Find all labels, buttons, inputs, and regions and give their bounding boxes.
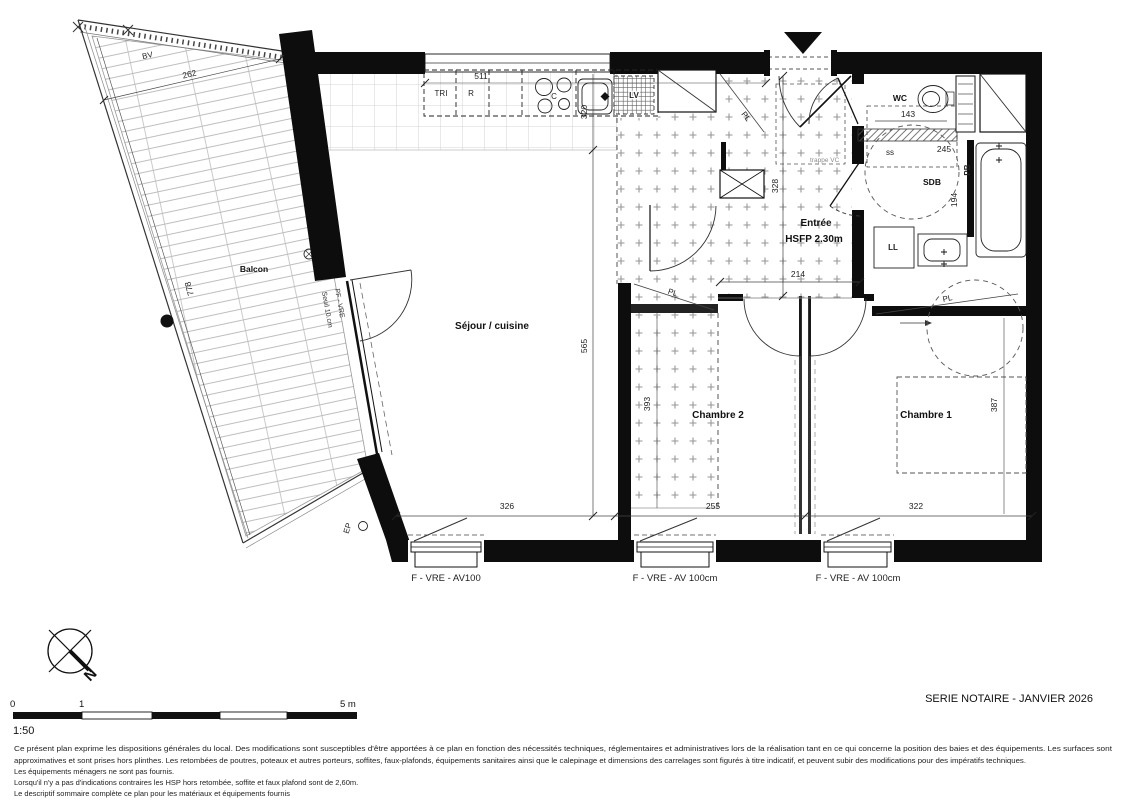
legal-notes: Ce présent plan exprime les dispositions… <box>14 744 1113 798</box>
downpipe-symbol <box>359 522 368 531</box>
room-label-wc: WC <box>893 93 907 103</box>
room-label-chambre2: Chambre 2 <box>692 410 744 421</box>
label-towel: ss <box>886 148 894 157</box>
series-title: SERIE NOTAIRE - JANVIER 2026 <box>925 693 1093 705</box>
room-label-entree: Entrée <box>800 218 832 229</box>
wall-wc-west-1 <box>852 74 864 84</box>
dim-387: 387 <box>989 398 999 412</box>
dim-565: 565 <box>579 339 589 353</box>
kitchen-tiles <box>316 66 617 150</box>
window-1 <box>408 518 484 567</box>
label-trappe: trappe VC <box>810 157 840 164</box>
duct-x-box <box>720 170 764 198</box>
chambre1-bed <box>897 377 1026 473</box>
scale-tick-1: 1 <box>79 699 84 710</box>
sdb-beam-hatch <box>858 129 957 141</box>
kitchen-shaft <box>658 70 716 112</box>
wall-hall <box>631 304 718 313</box>
window-label-1: F - VRE - AV100 <box>411 573 481 584</box>
wall-right <box>1026 52 1042 562</box>
wall-vestibule-left <box>718 294 743 301</box>
railing-corner-x <box>73 22 83 32</box>
north-compass-icon: N <box>48 629 100 685</box>
wall-top-right <box>833 52 1042 74</box>
wall-wc-west-3 <box>852 210 864 298</box>
chambre2-door-arc <box>744 299 800 356</box>
dim-322: 322 <box>909 501 923 511</box>
balcony-post <box>161 315 174 328</box>
dim-143: 143 <box>901 109 915 119</box>
window-2 <box>634 518 716 567</box>
scale-tick-0: 0 <box>10 699 15 710</box>
label-dishwasher: LV <box>629 91 639 100</box>
dim-255: 255 <box>706 501 720 511</box>
floor-plan-svg: Séjour / cuisine Balcon Chambre 2 Chambr… <box>0 0 1126 800</box>
dim-393: 393 <box>642 397 652 411</box>
wall-vestibule-right <box>864 294 874 301</box>
label-hob: C <box>551 92 557 101</box>
entrance-arrow-icon <box>784 32 822 54</box>
floor-textures <box>92 36 852 536</box>
sdb-basin <box>918 234 967 267</box>
label-fridge: R <box>468 89 474 98</box>
room-label-sdb: SDB <box>923 177 941 187</box>
label-bath-pb: PB <box>963 164 972 175</box>
partition-chambres <box>795 296 815 534</box>
scale-bar: 0 1 5 m 1:50 <box>10 699 357 737</box>
dim-245: 245 <box>937 144 951 154</box>
balcony-door-arc <box>360 270 412 341</box>
floor-plan-page: Séjour / cuisine Balcon Chambre 2 Chambr… <box>0 0 1126 800</box>
window-label-3: F - VRE - AV 100cm <box>816 573 901 584</box>
note-line-4: Lorsqu'il n'y a pas d'indications contra… <box>14 778 358 787</box>
wall-bottom-left-angled <box>357 453 414 562</box>
label-tri: TRI <box>435 89 448 98</box>
scale-tick-5m: 5 m <box>340 699 356 710</box>
chambre1-door-arc <box>810 299 866 356</box>
corner-shaft <box>980 74 1026 132</box>
dim-511: 511 <box>474 71 488 81</box>
dim-320: 320 <box>579 105 589 119</box>
note-line-2: approximatives et sont prises hors plint… <box>14 756 1026 765</box>
label-downpipe: EP <box>342 522 354 535</box>
dim-328: 328 <box>770 179 780 193</box>
dim-326: 326 <box>500 501 514 511</box>
balcony-door-leaf <box>350 270 411 280</box>
window-label-2: F - VRE - AV 100cm <box>633 573 718 584</box>
wall-top-left <box>310 52 425 74</box>
bathtub <box>976 143 1026 257</box>
label-closet-chambre1: PL <box>942 293 954 304</box>
room-label-balcon: Balcon <box>240 264 268 274</box>
wall-sejour-corridor <box>618 283 631 545</box>
toilet <box>918 86 954 113</box>
note-line-5: Le descriptif sommaire complète ce plan … <box>14 789 290 798</box>
scale-ratio: 1:50 <box>13 725 34 737</box>
room-label-hsfp: HSFP 2.30m <box>785 234 843 245</box>
room-label-chambre1: Chambre 1 <box>900 410 952 421</box>
entrance-opening <box>768 52 833 74</box>
room-label-sejour: Séjour / cuisine <box>455 321 529 332</box>
dim-214: 214 <box>791 269 805 279</box>
wall-bath-pb <box>967 140 974 237</box>
wall-bottom <box>396 540 1042 562</box>
note-line-1: Ce présent plan exprime les dispositions… <box>14 744 1113 753</box>
window-3 <box>821 518 894 567</box>
duct-bar <box>721 142 726 170</box>
note-line-3: Les équipements ménagers ne sont pas fou… <box>14 767 174 776</box>
label-washer: LL <box>888 243 898 252</box>
dim-194: 194 <box>949 193 959 207</box>
